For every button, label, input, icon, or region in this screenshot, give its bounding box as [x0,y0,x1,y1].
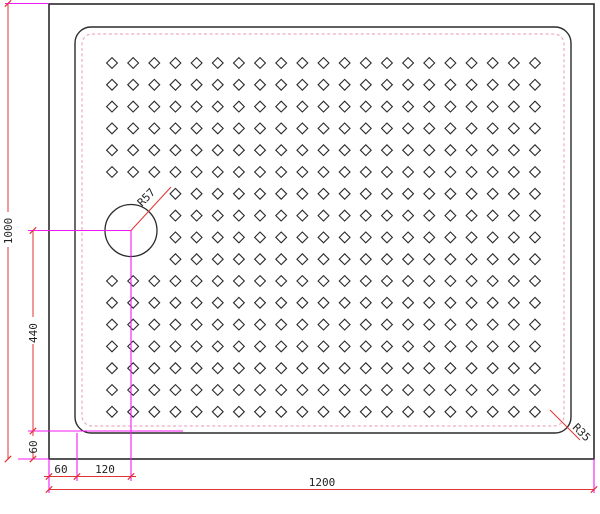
anti-slip-diamond [530,167,541,178]
anti-slip-diamond [530,101,541,112]
anti-slip-diamond [234,145,245,156]
anti-slip-diamond [360,385,371,396]
anti-slip-diamond [445,385,456,396]
anti-slip-diamond [170,276,181,287]
anti-slip-diamond [360,79,371,90]
anti-slip-diamond [508,319,519,330]
anti-slip-diamond [466,385,477,396]
anti-slip-diamond [191,58,202,69]
anti-slip-diamond [149,297,160,308]
anti-slip-diamond [212,167,223,178]
anti-slip-diamond [107,319,118,330]
anti-slip-diamond [466,79,477,90]
anti-slip-diamond [466,167,477,178]
anti-slip-diamond [318,188,329,199]
anti-slip-diamond [276,297,287,308]
anti-slip-diamond [297,232,308,243]
anti-slip-diamond [445,297,456,308]
anti-slip-diamond [149,58,160,69]
anti-slip-pattern [107,58,541,418]
anti-slip-diamond [276,385,287,396]
anti-slip-diamond [360,406,371,417]
anti-slip-diamond [530,58,541,69]
anti-slip-diamond [276,254,287,265]
anti-slip-diamond [382,363,393,374]
anti-slip-diamond [487,232,498,243]
anti-slip-diamond [170,297,181,308]
anti-slip-diamond [212,145,223,156]
anti-slip-diamond [403,210,414,221]
anti-slip-diamond [255,58,266,69]
anti-slip-diamond [403,145,414,156]
anti-slip-diamond [403,363,414,374]
dimension-ticks [5,0,597,492]
anti-slip-diamond [339,319,350,330]
anti-slip-diamond [508,167,519,178]
anti-slip-diamond [339,145,350,156]
anti-slip-diamond [339,79,350,90]
anti-slip-diamond [360,254,371,265]
anti-slip-diamond [128,145,139,156]
anti-slip-diamond [445,406,456,417]
anti-slip-diamond [297,254,308,265]
anti-slip-diamond [487,276,498,287]
anti-slip-diamond [276,232,287,243]
anti-slip-diamond [339,167,350,178]
anti-slip-diamond [191,232,202,243]
anti-slip-diamond [149,79,160,90]
anti-slip-diamond [149,276,160,287]
anti-slip-diamond [382,254,393,265]
anti-slip-diamond [149,101,160,112]
anti-slip-diamond [128,297,139,308]
anti-slip-diamond [530,276,541,287]
anti-slip-diamond [234,254,245,265]
anti-slip-diamond [149,341,160,352]
anti-slip-diamond [149,123,160,134]
anti-slip-diamond [170,232,181,243]
anti-slip-diamond [128,79,139,90]
anti-slip-diamond [212,341,223,352]
anti-slip-diamond [255,188,266,199]
anti-slip-diamond [255,167,266,178]
anti-slip-diamond [508,58,519,69]
anti-slip-diamond [360,341,371,352]
anti-slip-diamond [255,341,266,352]
anti-slip-diamond [170,385,181,396]
anti-slip-diamond [530,297,541,308]
anti-slip-diamond [445,276,456,287]
anti-slip-diamond [276,167,287,178]
anti-slip-diamond [360,58,371,69]
anti-slip-diamond [212,363,223,374]
anti-slip-diamond [445,341,456,352]
anti-slip-diamond [360,232,371,243]
anti-slip-diamond [170,123,181,134]
anti-slip-diamond [445,79,456,90]
anti-slip-diamond [466,210,477,221]
anti-slip-diamond [424,123,435,134]
anti-slip-diamond [466,58,477,69]
anti-slip-diamond [403,276,414,287]
anti-slip-diamond [403,188,414,199]
anti-slip-diamond [128,319,139,330]
dim-text-60-vertical: 60 [27,440,40,453]
anti-slip-diamond [191,188,202,199]
anti-slip-diamond [403,385,414,396]
anti-slip-diamond [487,58,498,69]
anti-slip-diamond [382,145,393,156]
anti-slip-diamond [149,319,160,330]
anti-slip-diamond [212,210,223,221]
anti-slip-diamond [234,167,245,178]
anti-slip-diamond [234,101,245,112]
anti-slip-diamond [318,363,329,374]
anti-slip-diamond [530,385,541,396]
anti-slip-diamond [234,188,245,199]
anti-slip-diamond [107,123,118,134]
anti-slip-diamond [297,188,308,199]
anti-slip-diamond [107,276,118,287]
anti-slip-diamond [508,101,519,112]
anti-slip-diamond [445,254,456,265]
anti-slip-diamond [403,79,414,90]
anti-slip-diamond [424,210,435,221]
anti-slip-diamond [445,188,456,199]
anti-slip-diamond [360,188,371,199]
anti-slip-diamond [318,167,329,178]
anti-slip-diamond [403,254,414,265]
anti-slip-diamond [255,297,266,308]
anti-slip-diamond [487,167,498,178]
anti-slip-diamond [234,297,245,308]
anti-slip-diamond [530,406,541,417]
anti-slip-diamond [255,363,266,374]
shower-tray-plan: 1000 440 60 60 120 1200 R57 R35 [0,0,600,514]
anti-slip-diamond [339,385,350,396]
anti-slip-diamond [530,254,541,265]
anti-slip-diamond [466,406,477,417]
anti-slip-diamond [424,167,435,178]
anti-slip-diamond [424,188,435,199]
anti-slip-diamond [487,363,498,374]
anti-slip-diamond [424,232,435,243]
anti-slip-diamond [191,319,202,330]
anti-slip-diamond [445,210,456,221]
anti-slip-diamond [191,145,202,156]
anti-slip-diamond [107,385,118,396]
anti-slip-diamond [382,123,393,134]
anti-slip-diamond [170,406,181,417]
anti-slip-diamond [276,341,287,352]
anti-slip-diamond [276,276,287,287]
anti-slip-diamond [234,58,245,69]
anti-slip-diamond [297,385,308,396]
anti-slip-diamond [360,276,371,287]
anti-slip-diamond [487,341,498,352]
anti-slip-diamond [382,276,393,287]
anti-slip-diamond [530,341,541,352]
extension-lines [5,4,594,494]
anti-slip-diamond [191,123,202,134]
anti-slip-diamond [276,101,287,112]
anti-slip-diamond [234,341,245,352]
anti-slip-diamond [297,319,308,330]
dim-text-r35: R35 [570,421,593,444]
anti-slip-diamond [466,363,477,374]
anti-slip-diamond [107,101,118,112]
anti-slip-diamond [424,79,435,90]
anti-slip-diamond [508,79,519,90]
anti-slip-diamond [191,276,202,287]
anti-slip-diamond [530,79,541,90]
anti-slip-diamond [445,101,456,112]
anti-slip-diamond [318,341,329,352]
anti-slip-diamond [466,254,477,265]
anti-slip-diamond [508,210,519,221]
anti-slip-diamond [466,297,477,308]
anti-slip-diamond [107,297,118,308]
anti-slip-diamond [424,319,435,330]
anti-slip-diamond [149,167,160,178]
anti-slip-diamond [297,123,308,134]
anti-slip-diamond [234,276,245,287]
anti-slip-diamond [530,363,541,374]
anti-slip-diamond [191,254,202,265]
anti-slip-diamond [191,79,202,90]
anti-slip-diamond [403,101,414,112]
anti-slip-diamond [212,297,223,308]
anti-slip-diamond [508,232,519,243]
anti-slip-diamond [424,297,435,308]
anti-slip-diamond [128,101,139,112]
anti-slip-diamond [255,406,266,417]
anti-slip-diamond [530,188,541,199]
anti-slip-diamond [149,363,160,374]
anti-slip-diamond [276,58,287,69]
anti-slip-diamond [360,167,371,178]
anti-slip-diamond [170,145,181,156]
anti-slip-diamond [128,276,139,287]
dim-text-1200: 1200 [309,476,336,489]
anti-slip-diamond [212,385,223,396]
anti-slip-diamond [276,406,287,417]
anti-slip-diamond [191,406,202,417]
anti-slip-diamond [403,232,414,243]
anti-slip-diamond [234,319,245,330]
anti-slip-diamond [191,297,202,308]
anti-slip-diamond [107,341,118,352]
anti-slip-diamond [424,385,435,396]
anti-slip-diamond [466,319,477,330]
anti-slip-diamond [339,58,350,69]
anti-slip-diamond [128,406,139,417]
anti-slip-diamond [508,276,519,287]
anti-slip-diamond [128,363,139,374]
anti-slip-diamond [445,58,456,69]
anti-slip-diamond [339,210,350,221]
anti-slip-diamond [297,341,308,352]
anti-slip-diamond [466,101,477,112]
anti-slip-diamond [508,385,519,396]
anti-slip-diamond [276,188,287,199]
anti-slip-diamond [297,406,308,417]
anti-slip-diamond [318,254,329,265]
anti-slip-diamond [170,188,181,199]
anti-slip-diamond [487,101,498,112]
anti-slip-diamond [170,58,181,69]
anti-slip-diamond [276,210,287,221]
dimension-texts: 1000 440 60 60 120 1200 R57 R35 [2,186,593,489]
anti-slip-diamond [276,79,287,90]
anti-slip-diamond [318,297,329,308]
anti-slip-diamond [445,123,456,134]
anti-slip-diamond [297,363,308,374]
anti-slip-diamond [487,210,498,221]
anti-slip-diamond [424,58,435,69]
anti-slip-diamond [255,145,266,156]
anti-slip-diamond [170,101,181,112]
anti-slip-diamond [149,145,160,156]
anti-slip-diamond [107,167,118,178]
anti-slip-diamond [191,210,202,221]
anti-slip-diamond [360,101,371,112]
anti-slip-diamond [318,101,329,112]
anti-slip-diamond [255,101,266,112]
anti-slip-diamond [424,254,435,265]
anti-slip-diamond [508,341,519,352]
anti-slip-diamond [234,123,245,134]
anti-slip-diamond [149,406,160,417]
anti-slip-diamond [339,254,350,265]
anti-slip-diamond [191,101,202,112]
anti-slip-diamond [382,319,393,330]
anti-slip-diamond [487,254,498,265]
anti-slip-diamond [255,123,266,134]
anti-slip-diamond [508,188,519,199]
anti-slip-diamond [445,319,456,330]
anti-slip-diamond [382,101,393,112]
anti-slip-diamond [530,145,541,156]
anti-slip-diamond [234,406,245,417]
anti-slip-diamond [508,254,519,265]
anti-slip-diamond [339,363,350,374]
anti-slip-diamond [297,101,308,112]
anti-slip-diamond [530,319,541,330]
cad-drawing: 1000 440 60 60 120 1200 R57 R35 [0,0,600,514]
anti-slip-diamond [424,145,435,156]
anti-slip-diamond [212,79,223,90]
anti-slip-diamond [382,297,393,308]
anti-slip-diamond [466,276,477,287]
anti-slip-diamond [276,363,287,374]
anti-slip-diamond [382,406,393,417]
dim-text-440: 440 [27,323,40,343]
anti-slip-diamond [234,79,245,90]
anti-slip-diamond [191,385,202,396]
anti-slip-diamond [487,406,498,417]
anti-slip-diamond [234,210,245,221]
anti-slip-diamond [445,363,456,374]
anti-slip-diamond [255,79,266,90]
anti-slip-diamond [212,188,223,199]
anti-slip-diamond [107,145,118,156]
anti-slip-diamond [403,341,414,352]
anti-slip-diamond [530,210,541,221]
anti-slip-diamond [360,297,371,308]
anti-slip-diamond [318,276,329,287]
anti-slip-diamond [191,363,202,374]
anti-slip-diamond [255,385,266,396]
anti-slip-diamond [487,297,498,308]
anti-slip-diamond [339,276,350,287]
anti-slip-diamond [487,319,498,330]
anti-slip-diamond [318,79,329,90]
anti-slip-diamond [128,341,139,352]
anti-slip-diamond [339,188,350,199]
anti-slip-diamond [424,406,435,417]
anti-slip-diamond [212,101,223,112]
anti-slip-diamond [170,254,181,265]
anti-slip-diamond [360,319,371,330]
anti-slip-diamond [360,363,371,374]
anti-slip-diamond [170,341,181,352]
anti-slip-diamond [318,145,329,156]
anti-slip-diamond [212,58,223,69]
anti-slip-diamond [508,406,519,417]
anti-slip-diamond [297,210,308,221]
anti-slip-diamond [382,58,393,69]
dim-text-60-horizontal: 60 [54,463,67,476]
anti-slip-diamond [107,79,118,90]
anti-slip-diamond [424,363,435,374]
anti-slip-diamond [107,58,118,69]
anti-slip-diamond [360,145,371,156]
anti-slip-diamond [128,58,139,69]
anti-slip-diamond [508,123,519,134]
anti-slip-diamond [170,79,181,90]
dim-text-120: 120 [95,463,115,476]
anti-slip-diamond [212,232,223,243]
anti-slip-diamond [403,406,414,417]
anti-slip-diamond [212,254,223,265]
anti-slip-diamond [487,79,498,90]
anti-slip-diamond [382,232,393,243]
anti-slip-diamond [318,123,329,134]
anti-slip-diamond [466,123,477,134]
anti-slip-diamond [170,363,181,374]
anti-slip-diamond [339,123,350,134]
anti-slip-diamond [107,406,118,417]
anti-slip-diamond [212,406,223,417]
anti-slip-diamond [170,167,181,178]
anti-slip-diamond [255,276,266,287]
anti-slip-diamond [234,385,245,396]
anti-slip-diamond [403,123,414,134]
anti-slip-diamond [212,123,223,134]
anti-slip-diamond [382,341,393,352]
anti-slip-diamond [318,319,329,330]
anti-slip-diamond [445,145,456,156]
anti-slip-diamond [297,167,308,178]
anti-slip-diamond [403,58,414,69]
anti-slip-diamond [508,363,519,374]
anti-slip-diamond [360,123,371,134]
anti-slip-diamond [466,232,477,243]
anti-slip-diamond [234,363,245,374]
anti-slip-diamond [508,145,519,156]
anti-slip-diamond [530,123,541,134]
